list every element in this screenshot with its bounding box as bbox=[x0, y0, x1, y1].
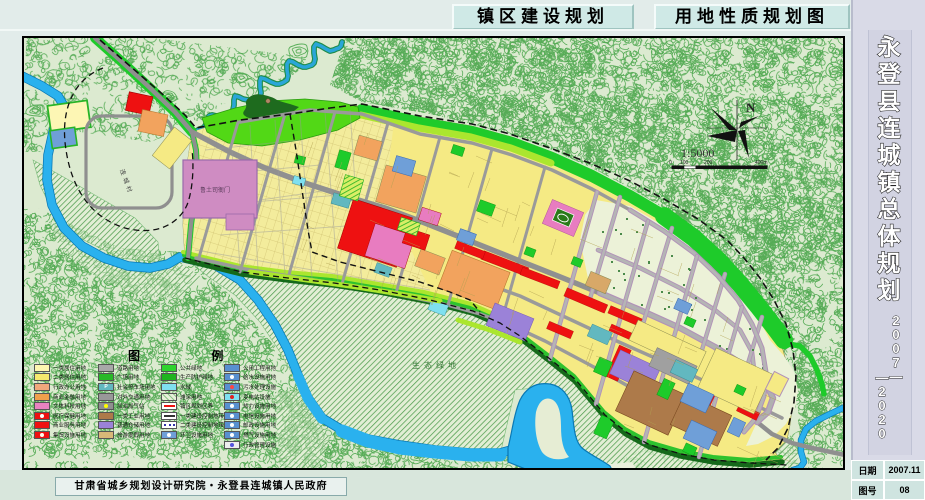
svg-text:0: 0 bbox=[669, 160, 672, 166]
svg-text:N: N bbox=[746, 100, 756, 115]
svg-text:200: 200 bbox=[704, 160, 713, 166]
svg-text:400m: 400m bbox=[755, 160, 768, 166]
svg-text:鲁土司衙门: 鲁土司衙门 bbox=[200, 186, 230, 194]
svg-text:100: 100 bbox=[680, 160, 689, 166]
svg-text:生态绿地: 生态绿地 bbox=[412, 360, 460, 370]
svg-text:1:5000: 1:5000 bbox=[681, 146, 714, 160]
